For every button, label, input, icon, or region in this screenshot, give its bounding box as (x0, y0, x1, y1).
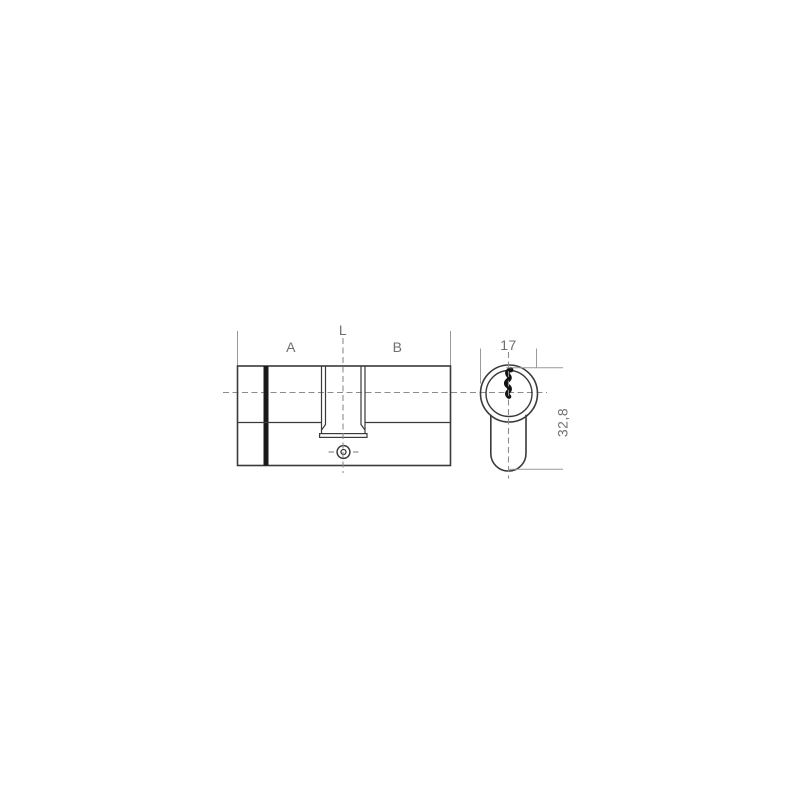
cylinder-body-outline (238, 366, 451, 466)
cylinder-front-view: 17 32,8 (481, 337, 571, 479)
technical-drawing-canvas: A L B 17 (0, 0, 800, 800)
cylinder-side-view: A L B (238, 322, 451, 473)
dim-label-17: 17 (500, 337, 517, 353)
dim-label-l: L (339, 322, 347, 338)
height-dimension: 32,8 (506, 368, 571, 470)
dim-label-b: B (393, 339, 403, 355)
dim-label-32-8: 32,8 (555, 408, 571, 437)
dim-label-a: A (286, 339, 296, 355)
body-separator-bar (264, 366, 269, 466)
lock-cylinder-diagram: A L B 17 (0, 0, 800, 800)
